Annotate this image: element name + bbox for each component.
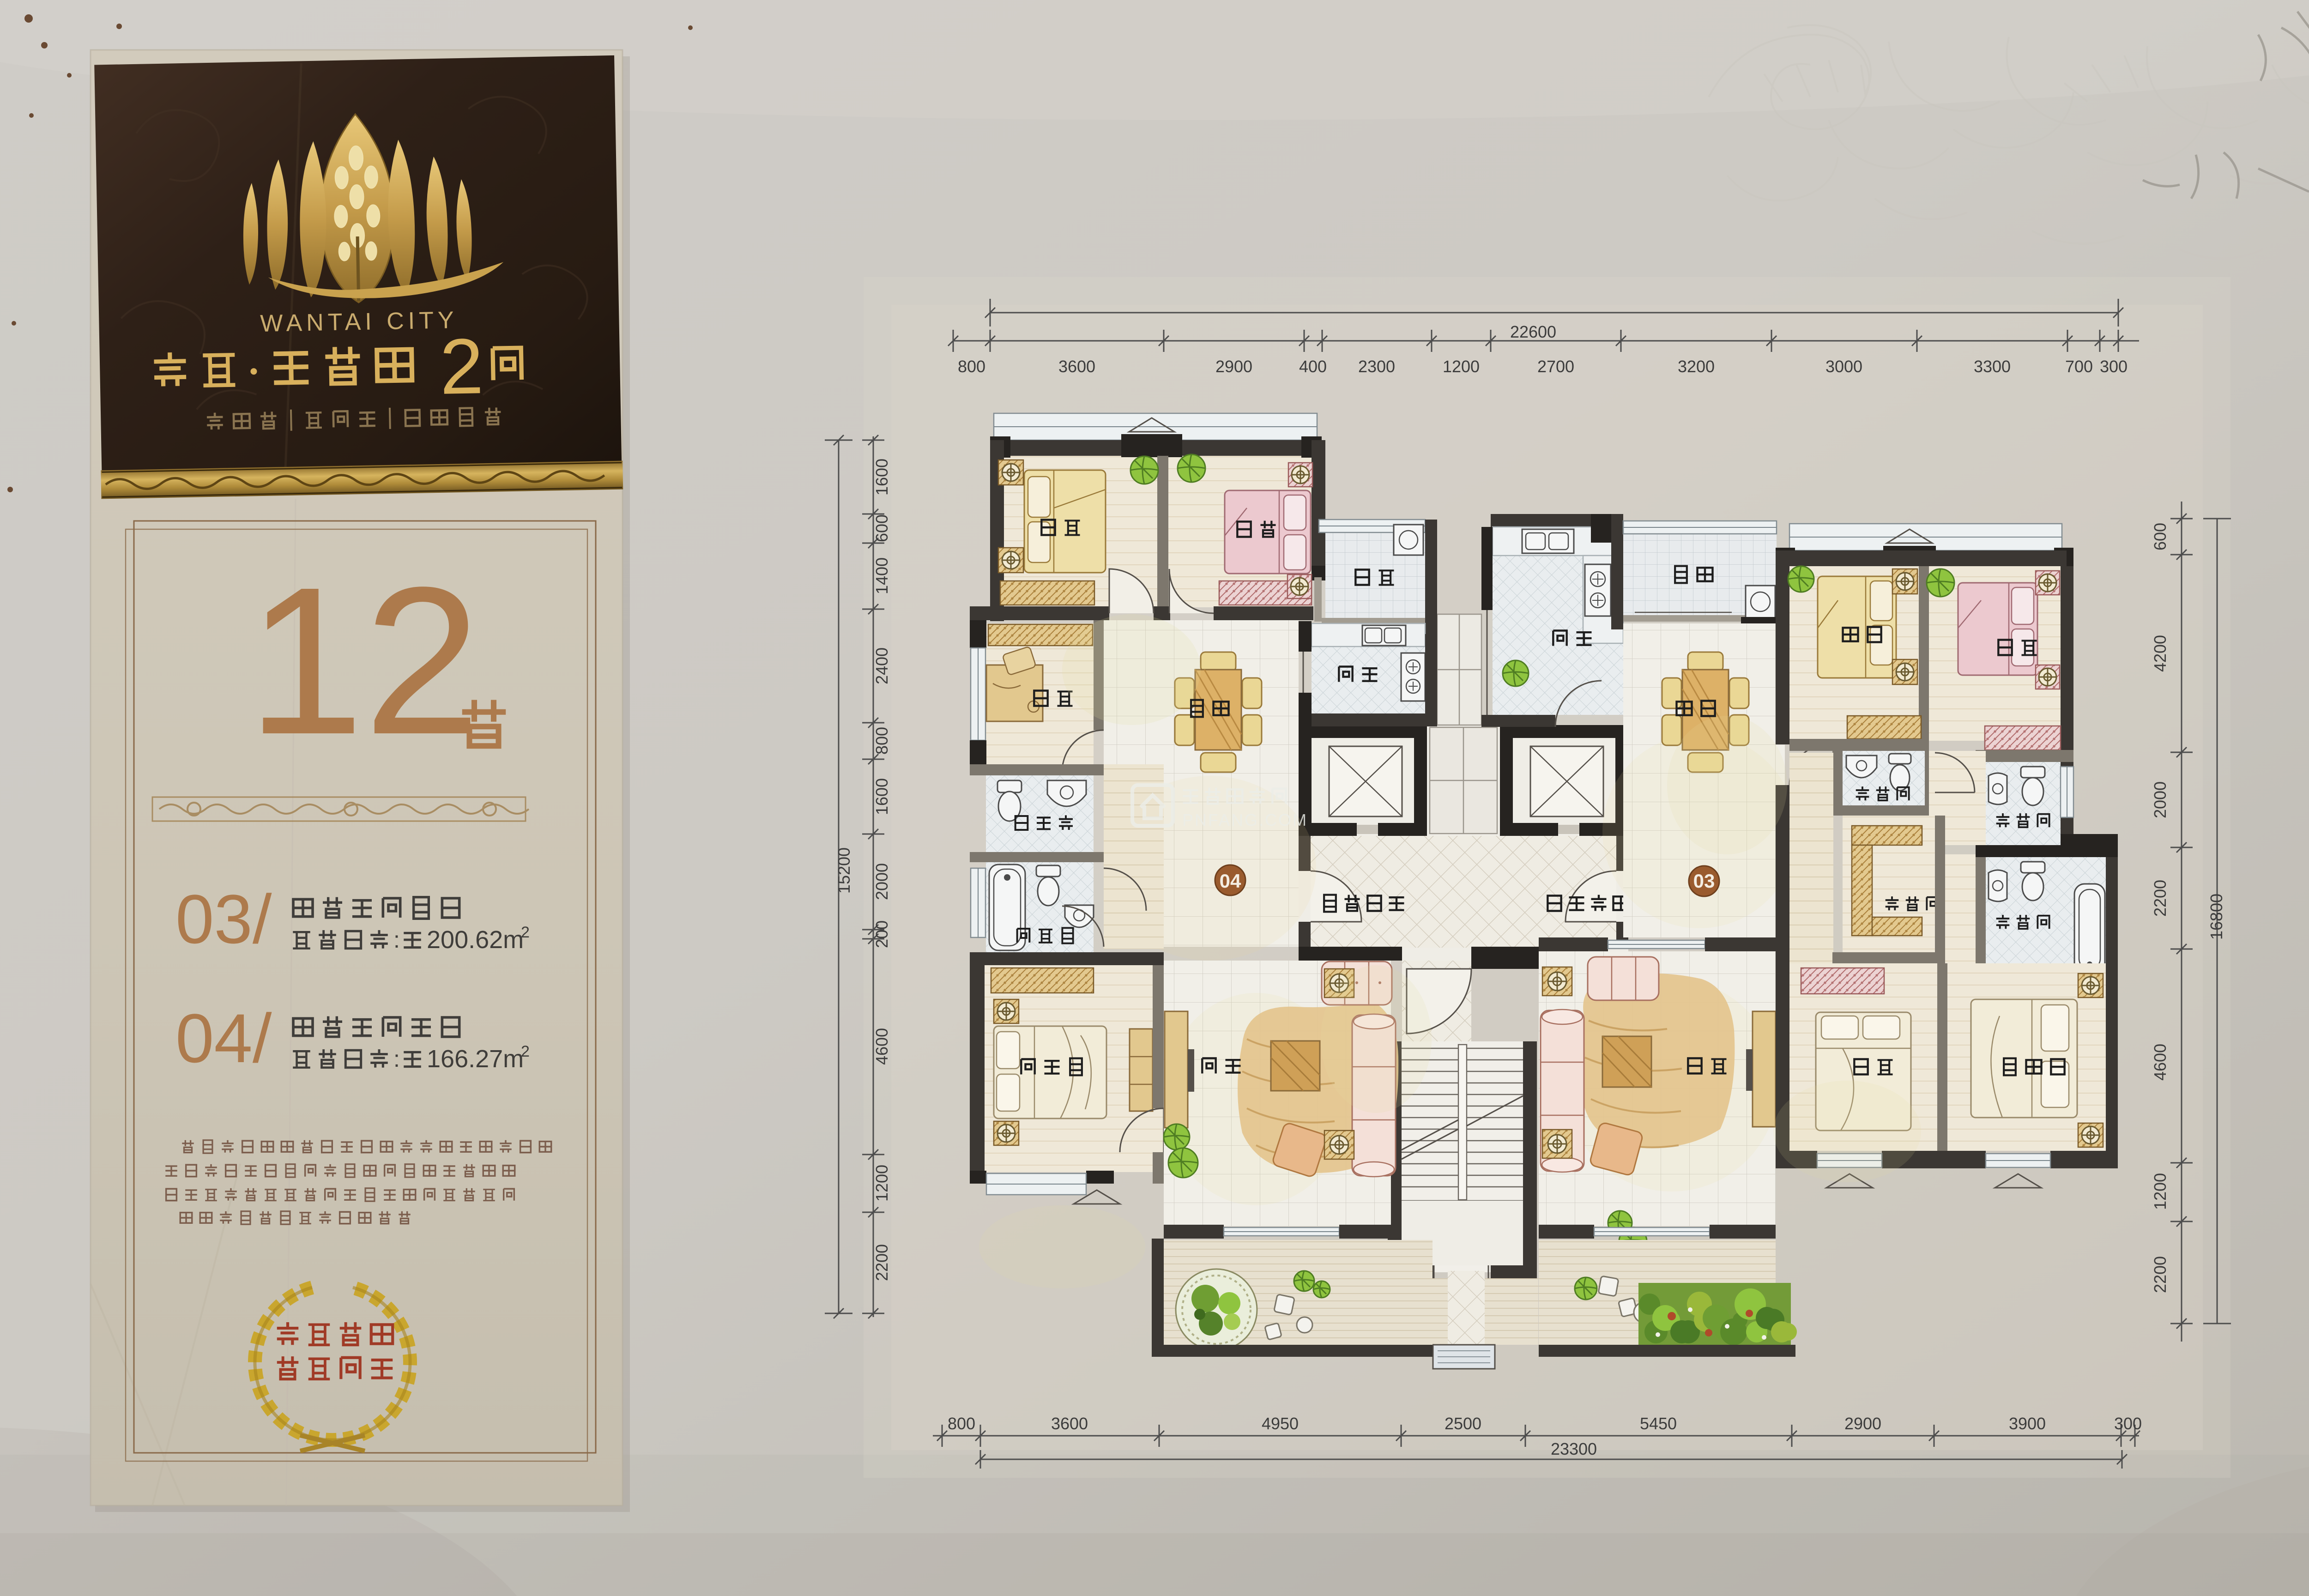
svg-text:3000: 3000 <box>1825 357 1862 376</box>
svg-text:16800: 16800 <box>2207 894 2226 940</box>
svg-text:800: 800 <box>872 727 891 755</box>
svg-text:4600: 4600 <box>2151 1044 2170 1081</box>
svg-text:23300: 23300 <box>1551 1439 1597 1458</box>
svg-text:PNFANG.COM: PNFANG.COM <box>1182 810 1308 829</box>
svg-text:1200: 1200 <box>872 1165 891 1202</box>
svg-text:03: 03 <box>1693 870 1715 892</box>
svg-text::: : <box>393 1046 400 1072</box>
svg-text:3300: 3300 <box>1974 357 2011 376</box>
svg-text:2000: 2000 <box>2151 781 2170 818</box>
svg-text:3600: 3600 <box>1051 1414 1088 1433</box>
svg-text:2: 2 <box>439 322 484 411</box>
svg-text:2200: 2200 <box>872 1244 891 1281</box>
svg-text:1400: 1400 <box>872 557 891 594</box>
svg-text:2900: 2900 <box>1215 357 1252 376</box>
svg-text:3200: 3200 <box>1678 357 1715 376</box>
svg-text:03/: 03/ <box>175 880 272 958</box>
svg-text:15200: 15200 <box>834 847 853 894</box>
svg-text:166.27m: 166.27m <box>427 1045 524 1073</box>
svg-text:2000: 2000 <box>872 863 891 900</box>
svg-text:4950: 4950 <box>1262 1414 1299 1433</box>
svg-text:2200: 2200 <box>2151 880 2170 917</box>
svg-text:300: 300 <box>2100 357 2128 376</box>
svg-text:04/: 04/ <box>175 999 272 1077</box>
svg-text:2900: 2900 <box>1844 1414 1881 1433</box>
svg-text:1600: 1600 <box>872 778 891 815</box>
svg-text:600: 600 <box>872 514 891 542</box>
svg-text:2: 2 <box>521 924 530 941</box>
svg-text:4200: 4200 <box>2151 635 2170 672</box>
svg-text:600: 600 <box>2151 523 2170 550</box>
svg-text:200: 200 <box>872 920 891 948</box>
svg-text:300: 300 <box>2114 1414 2142 1433</box>
svg-text:2500: 2500 <box>1445 1414 1481 1433</box>
svg-text:5450: 5450 <box>1640 1414 1677 1433</box>
svg-text:1200: 1200 <box>2151 1173 2170 1210</box>
svg-text:2200: 2200 <box>2151 1256 2170 1293</box>
svg-text:3600: 3600 <box>1058 357 1095 376</box>
svg-text:1600: 1600 <box>872 459 891 496</box>
svg-text::: : <box>393 927 400 953</box>
svg-text:22600: 22600 <box>1510 322 1556 341</box>
svg-text:WANTAI CITY: WANTAI CITY <box>260 307 458 337</box>
svg-text:4600: 4600 <box>872 1028 891 1065</box>
svg-text:3900: 3900 <box>2009 1414 2046 1433</box>
svg-text:200.62m: 200.62m <box>427 926 524 954</box>
svg-text:800: 800 <box>958 357 985 376</box>
svg-text:2300: 2300 <box>1358 357 1395 376</box>
svg-text:700: 700 <box>2065 357 2093 376</box>
svg-text:1200: 1200 <box>1443 357 1480 376</box>
svg-text:2: 2 <box>521 1043 530 1060</box>
svg-text:2400: 2400 <box>872 647 891 684</box>
svg-text:04: 04 <box>1220 870 1241 892</box>
svg-text:2700: 2700 <box>1537 357 1574 376</box>
svg-text:400: 400 <box>1299 357 1327 376</box>
svg-text:800: 800 <box>948 1414 975 1433</box>
svg-text:12: 12 <box>247 544 481 778</box>
